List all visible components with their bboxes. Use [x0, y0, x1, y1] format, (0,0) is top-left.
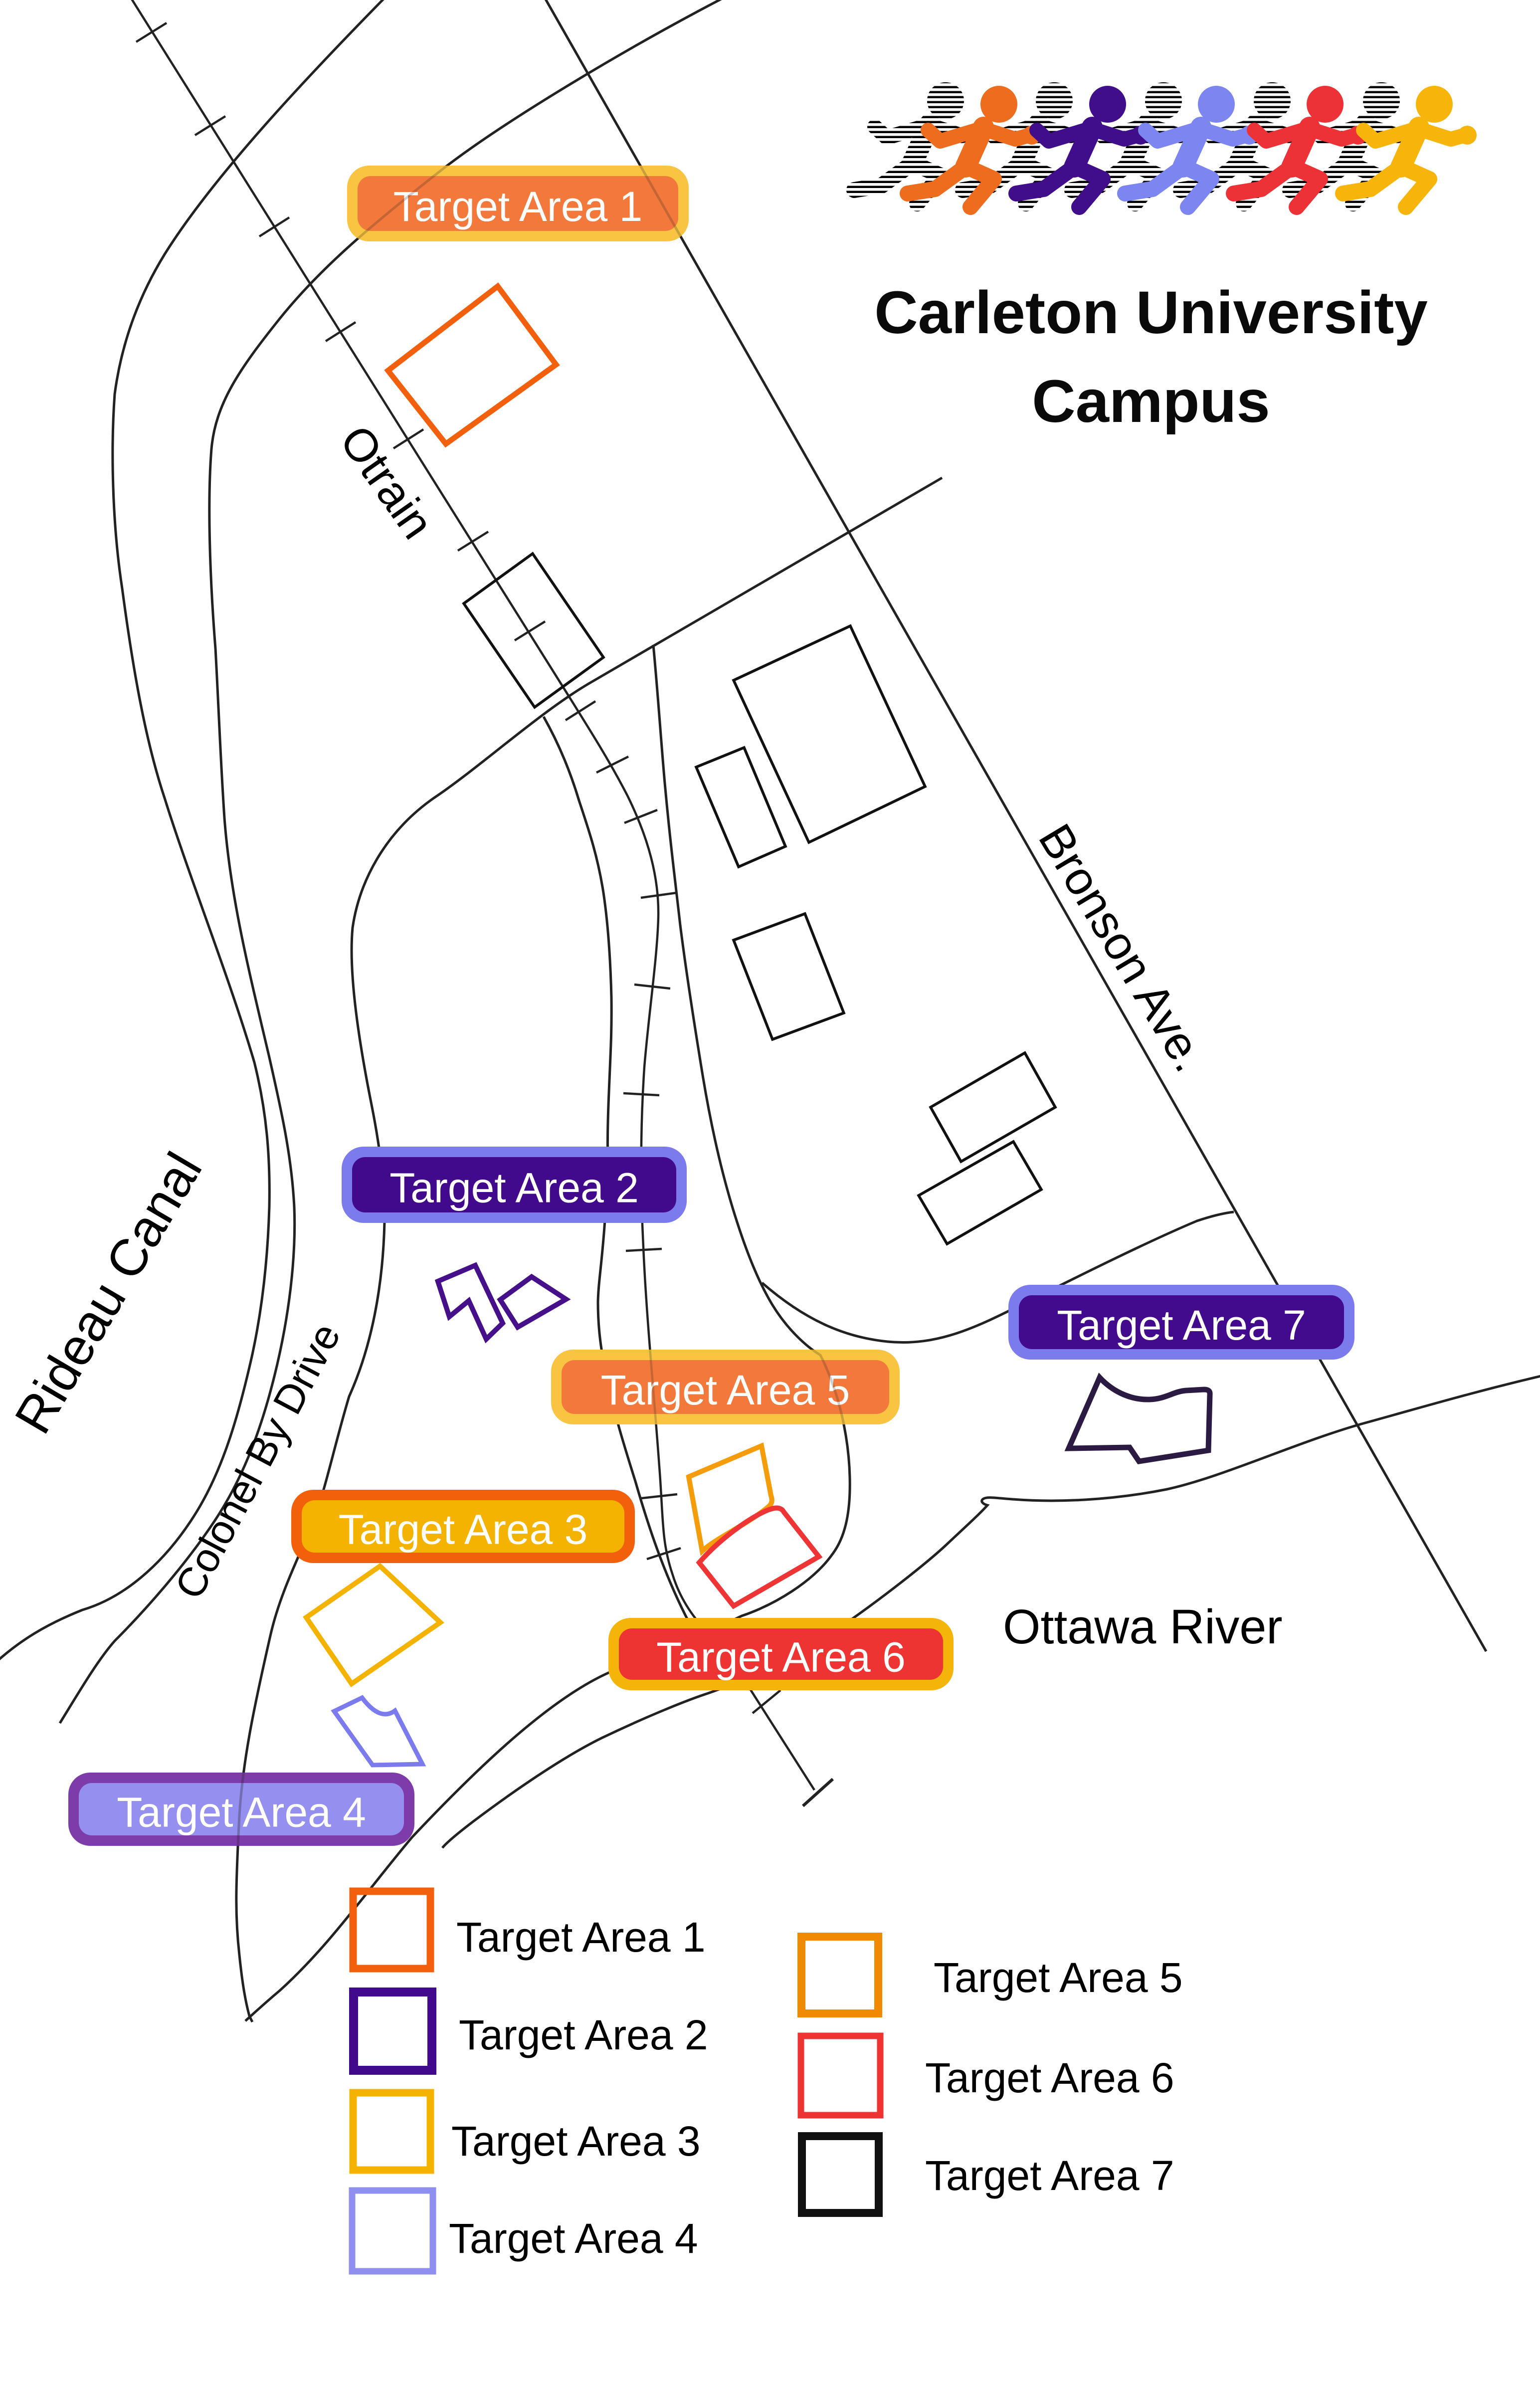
svg-text:Target Area 1: Target Area 1 — [393, 183, 643, 230]
svg-text:Ottawa River: Ottawa River — [1003, 1599, 1283, 1654]
svg-text:Target Area 3: Target Area 3 — [339, 1506, 588, 1553]
svg-text:Target Area 6: Target Area 6 — [656, 1634, 906, 1681]
svg-text:Target Area 1: Target Area 1 — [456, 1914, 706, 1961]
svg-text:Carleton University: Carleton University — [874, 278, 1428, 346]
svg-text:Campus: Campus — [1032, 367, 1270, 435]
svg-text:Target Area 4: Target Area 4 — [449, 2215, 698, 2262]
svg-text:Target Area 2: Target Area 2 — [389, 1165, 639, 1211]
svg-text:Target Area 5: Target Area 5 — [601, 1367, 850, 1413]
svg-text:Target Area 7: Target Area 7 — [1057, 1302, 1306, 1349]
svg-text:Target Area 7: Target Area 7 — [925, 2152, 1174, 2199]
svg-text:Target Area 6: Target Area 6 — [925, 2054, 1174, 2101]
svg-text:Target Area 2: Target Area 2 — [459, 2011, 708, 2058]
svg-text:Target Area 5: Target Area 5 — [934, 1954, 1183, 2001]
svg-text:Target Area 3: Target Area 3 — [451, 2118, 701, 2165]
